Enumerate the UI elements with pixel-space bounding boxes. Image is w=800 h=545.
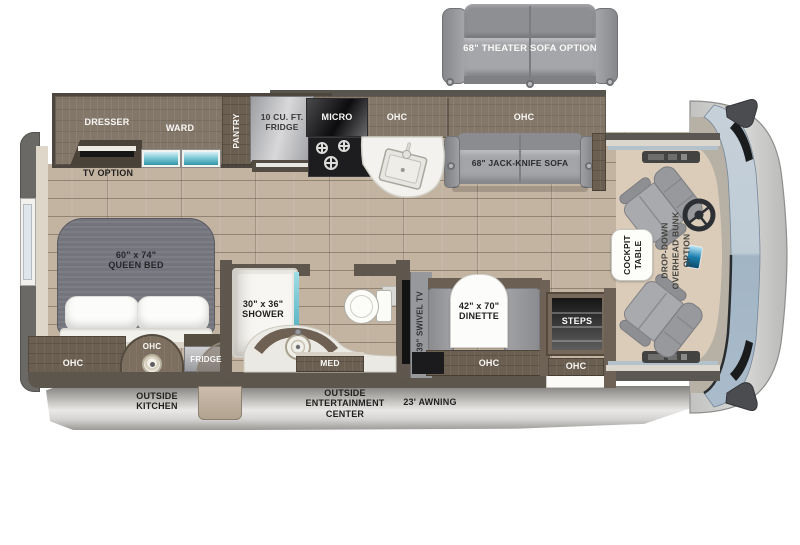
sofa-foot-left: [446, 78, 454, 86]
burner-icon: [324, 156, 338, 170]
cab-sill-bottom: [606, 365, 720, 371]
theater-sofa-option: 68" THEATER SOFA OPTION: [440, 2, 620, 90]
bath-wall-top-right: [354, 264, 402, 276]
steps-label: STEPS: [547, 316, 607, 326]
ward-label: WARD: [140, 123, 220, 133]
sofa-center-seam: [529, 6, 531, 78]
outside-fridge-label: FRIDGE: [178, 355, 234, 364]
outside-kitchen-label: OUTSIDEKITCHEN: [107, 391, 207, 412]
sofa-floor-shadow: [452, 186, 588, 192]
pillow-right: [137, 296, 209, 332]
bedroom-window-right: [182, 150, 220, 167]
med-label: MED: [300, 359, 360, 369]
burner-icon: [316, 142, 328, 154]
rear-window-glass: [23, 204, 32, 280]
pillow-left: [65, 296, 139, 332]
sofa-foot-right: [606, 78, 614, 86]
swivel-tv-label: 39" SWIVEL TV: [416, 277, 427, 367]
tv-option-label: TV OPTION: [68, 168, 148, 178]
main-fridge-label: 10 CU. FT.FRIDGE: [252, 113, 312, 133]
cockpit-table-label: COCKPITTABLE: [622, 228, 644, 282]
microwave-label: MICRO: [307, 112, 367, 122]
shower-label: 30" x 36"SHOWER: [223, 299, 303, 320]
cab-sill-top: [606, 140, 720, 146]
bedroom-wall-lining: [36, 146, 48, 336]
faucet-icon: [295, 329, 301, 335]
bedroom-window-left: [142, 150, 180, 167]
ohc-kitchen-label: OHC: [367, 112, 427, 122]
bedroom-tv: [80, 151, 134, 157]
sofa-foot-center: [526, 80, 534, 88]
dresser-label: DRESSER: [67, 117, 147, 127]
fridge-base-trim: [256, 163, 308, 167]
floorplan-canvas: OUTSIDEKITCHEN OUTSIDEENTERTAINMENTCENTE…: [0, 0, 800, 545]
outside-entertainment-label: OUTSIDEENTERTAINMENTCENTER: [295, 388, 395, 419]
cab-wall-bottom: [616, 371, 720, 381]
cab-window-top: [608, 146, 718, 150]
burner-icon: [338, 140, 350, 152]
overhead-console-top: [642, 151, 700, 163]
cab-wall-top: [606, 133, 720, 140]
dinette-label: 42" x 70"DINETTE: [439, 301, 519, 322]
ohc-bedroom-label: OHC: [43, 358, 103, 368]
awning-label: 23' AWNING: [385, 397, 475, 407]
queen-bed-label: 60" x 74"QUEEN BED: [86, 250, 186, 271]
ohc-living-label: OHC: [494, 112, 554, 122]
toilet-bowl-inner: [350, 295, 373, 318]
theater-sofa-label: 68" THEATER SOFA OPTION: [440, 44, 620, 55]
drop-down-bunk-label: DROP-DOWNOVERHEAD BUNKOPTION: [660, 191, 693, 311]
sink-drain-dot: [150, 362, 155, 367]
ohc-entry-label: OHC: [546, 361, 606, 371]
ohc-dinette-label: OHC: [459, 358, 519, 368]
jackknife-sofa-label: 68" JACK-KNIFE SOFA: [460, 159, 580, 169]
ohc-outside-kitchen-label: OHC: [122, 342, 182, 351]
kitchen-counter: [355, 130, 455, 205]
pantry-label: PANTRY: [231, 108, 243, 154]
